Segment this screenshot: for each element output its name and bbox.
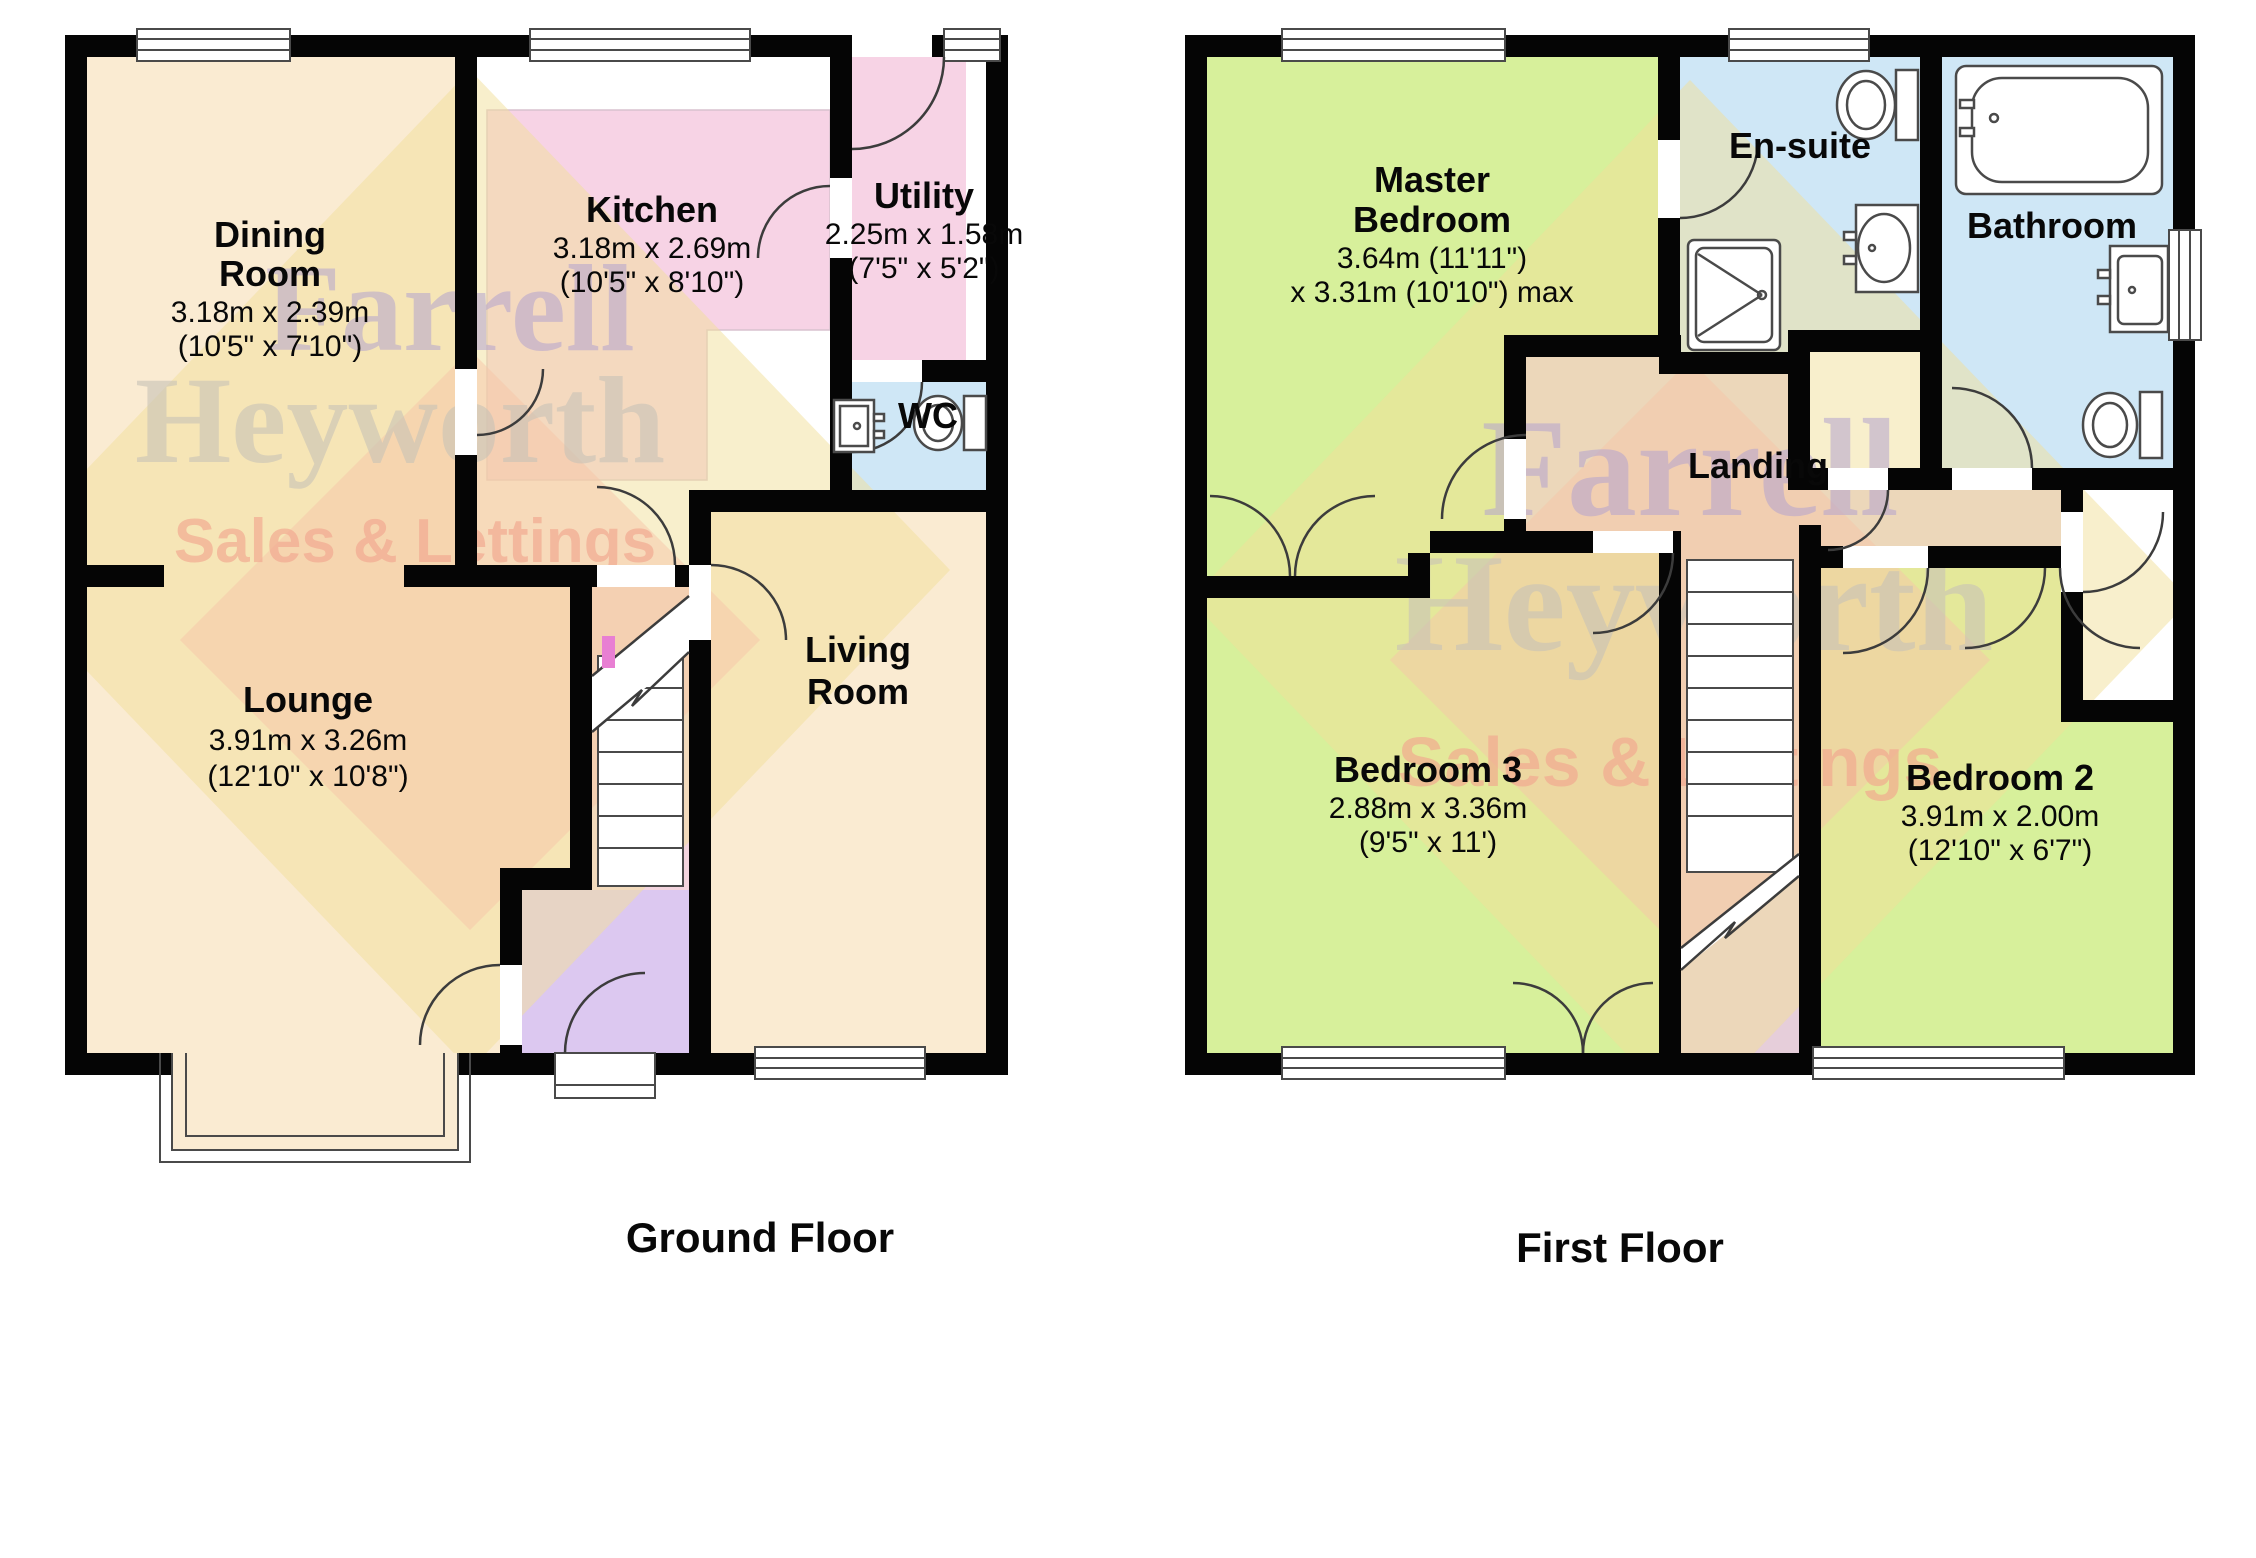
first-floor-title: First Floor bbox=[1516, 1224, 1724, 1271]
bathtub bbox=[1956, 66, 2162, 194]
first-floor-plan: Farrell Heyworth Sales & Lettings bbox=[1185, 29, 2201, 1271]
wall-ensuite-bathroom bbox=[1920, 35, 1942, 490]
dims-dining-metric: 3.18m x 2.39m bbox=[171, 296, 369, 329]
opening-cupboard2 bbox=[2061, 512, 2083, 592]
dims-master-line2: x 3.31m (10'10") max bbox=[1290, 276, 1573, 309]
opening-utility-wc bbox=[852, 360, 922, 382]
label-landing: Landing bbox=[1688, 445, 1828, 486]
window-utility bbox=[944, 29, 1000, 61]
opening-bathroom bbox=[1952, 468, 2032, 490]
opening-living-door bbox=[689, 565, 711, 640]
wall-stairwell-right-ff bbox=[1799, 525, 1821, 1053]
stairs-first-flight bbox=[1687, 560, 1793, 872]
sink-ensuite bbox=[1844, 205, 1918, 292]
dims-bedroom3-imperial: (9'5" x 11') bbox=[1359, 826, 1497, 859]
label-master-line2: Bedroom bbox=[1353, 199, 1511, 240]
wall-stairwell-left bbox=[570, 587, 592, 868]
dims-utility-imperial: (7'5" x 5'2") bbox=[848, 252, 999, 285]
label-utility: Utility bbox=[874, 175, 974, 216]
opening-dining-kitchen bbox=[455, 369, 477, 455]
dims-kitchen-imperial: (10'5" x 8'10") bbox=[560, 266, 745, 299]
ground-floor-title: Ground Floor bbox=[626, 1214, 894, 1261]
label-lounge: Lounge bbox=[243, 679, 373, 720]
floorplan-drawing: Farrell Heyworth Sales & Lettings bbox=[0, 0, 2256, 1558]
floorplan-page: Farrell Heyworth Sales & Lettings bbox=[0, 0, 2256, 1558]
stairs-ground bbox=[592, 596, 689, 886]
wall-ff-outer-right bbox=[2173, 35, 2195, 1075]
front-door-threshold bbox=[555, 1053, 655, 1098]
dims-bedroom2-imperial: (12'10" x 6'7") bbox=[1908, 834, 2093, 867]
label-bathroom: Bathroom bbox=[1967, 205, 2137, 246]
wall-master-landing-h bbox=[1526, 335, 1681, 357]
watermark-text-heyworth: Heyworth bbox=[135, 352, 665, 489]
wall-living-top bbox=[689, 490, 1008, 512]
stairs-ground-marker bbox=[602, 636, 615, 668]
wall-hall-stub bbox=[500, 868, 592, 890]
window-master bbox=[1282, 29, 1505, 61]
opening-ensuite bbox=[1658, 140, 1680, 218]
wall-dining-lounge-stub bbox=[87, 565, 164, 587]
window-ensuite bbox=[1729, 29, 1869, 61]
window-bathroom bbox=[2169, 230, 2201, 340]
dims-bedroom2-metric: 3.91m x 2.00m bbox=[1901, 800, 2099, 833]
dims-kitchen-metric: 3.18m x 2.69m bbox=[553, 232, 751, 265]
ground-floor-plan: Farrell Heyworth Sales & Lettings bbox=[0, 29, 1023, 1261]
wall-stairwell-left-ff bbox=[1659, 553, 1681, 1053]
window-dining bbox=[137, 29, 290, 61]
dims-dining-imperial: (10'5" x 7'10") bbox=[178, 330, 363, 363]
label-bedroom3: Bedroom 3 bbox=[1334, 749, 1522, 790]
opening-bedroom2 bbox=[1843, 546, 1928, 568]
wall-ensuite-landing bbox=[1659, 352, 1810, 374]
dims-utility-metric: 2.25m x 1.58m bbox=[825, 218, 1023, 251]
dims-master-line1: 3.64m (11'11") bbox=[1337, 242, 1527, 275]
wall-gf-outer-left bbox=[65, 35, 87, 1075]
wall-ff-outer-left bbox=[1185, 35, 1207, 1075]
opening-lounge-door bbox=[500, 965, 522, 1045]
opening-hall-door bbox=[597, 565, 675, 587]
dims-lounge-imperial: (12'10" x 10'8") bbox=[207, 760, 408, 793]
shower-ensuite bbox=[1688, 240, 1780, 350]
window-kitchen bbox=[530, 29, 750, 61]
wall-dining-kitchen bbox=[455, 57, 477, 565]
window-bedroom3 bbox=[1282, 1047, 1505, 1079]
wall-gf-outer-right bbox=[986, 35, 1008, 1075]
wall-master-bedroom3 bbox=[1207, 576, 1408, 598]
label-wc: WC bbox=[898, 395, 958, 436]
label-ensuite: En-suite bbox=[1729, 125, 1871, 166]
opening-utility-back-door bbox=[852, 35, 932, 57]
opening-master bbox=[1504, 439, 1526, 519]
wall-step-connector bbox=[1408, 553, 1430, 598]
label-living-line1: Living bbox=[805, 629, 911, 670]
window-bedroom2 bbox=[1813, 1047, 2064, 1079]
window-living-room bbox=[755, 1047, 925, 1079]
wall-cupboard2-bottom bbox=[2061, 700, 2173, 722]
label-bedroom2: Bedroom 2 bbox=[1906, 757, 2094, 798]
label-kitchen: Kitchen bbox=[586, 189, 718, 230]
bay-window-lounge bbox=[160, 1053, 470, 1162]
dims-bedroom3-metric: 2.88m x 3.36m bbox=[1329, 792, 1527, 825]
opening-bedroom3 bbox=[1593, 531, 1673, 553]
dims-lounge-metric: 3.91m x 3.26m bbox=[209, 724, 407, 757]
opening-cupboard1 bbox=[1828, 468, 1888, 490]
toilet-bathroom bbox=[2083, 392, 2162, 458]
label-dining-line2: Room bbox=[219, 253, 321, 294]
label-master-line1: Master bbox=[1374, 159, 1490, 200]
label-dining-line1: Dining bbox=[214, 214, 326, 255]
label-living-line2: Room bbox=[807, 671, 909, 712]
